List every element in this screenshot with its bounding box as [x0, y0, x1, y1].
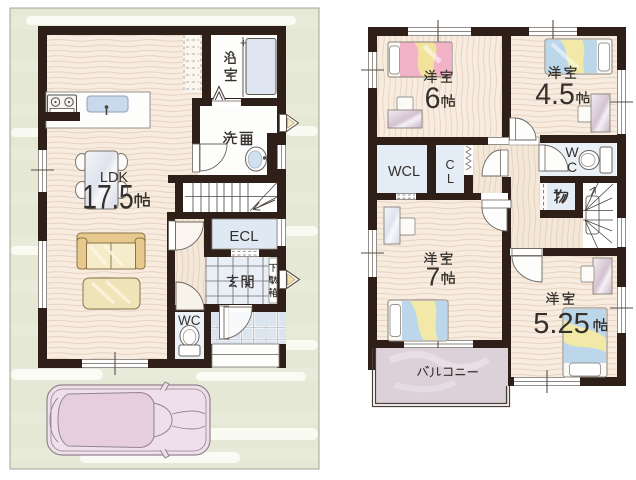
svg-text:7: 7 [426, 262, 440, 292]
svg-text:C: C [445, 158, 454, 172]
svg-text:ECL: ECL [229, 228, 258, 245]
svg-text:WCL: WCL [388, 164, 420, 180]
svg-text:5.25: 5.25 [533, 308, 589, 340]
svg-text:C: C [567, 159, 577, 175]
svg-text:6: 6 [425, 82, 441, 115]
svg-text:W: W [565, 144, 579, 160]
svg-text:L: L [447, 172, 454, 186]
svg-text:4.5: 4.5 [535, 78, 575, 111]
svg-text:17.5: 17.5 [82, 178, 134, 216]
